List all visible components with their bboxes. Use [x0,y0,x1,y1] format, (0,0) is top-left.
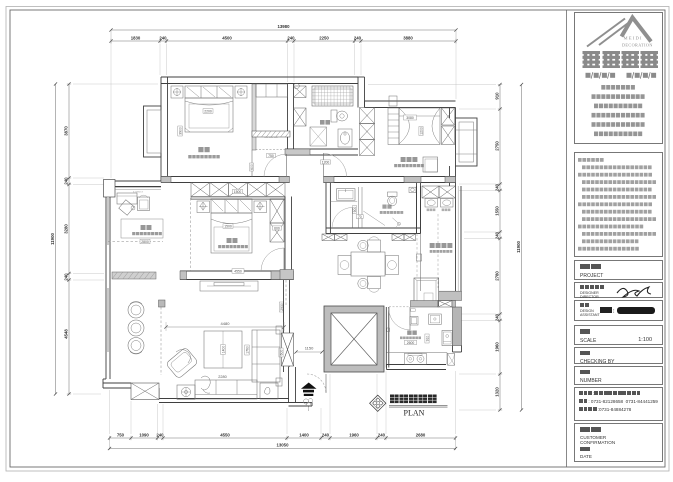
svg-text:MEIDI: MEIDI [624,36,643,41]
svg-text:DECORATION: DECORATION [622,43,653,48]
